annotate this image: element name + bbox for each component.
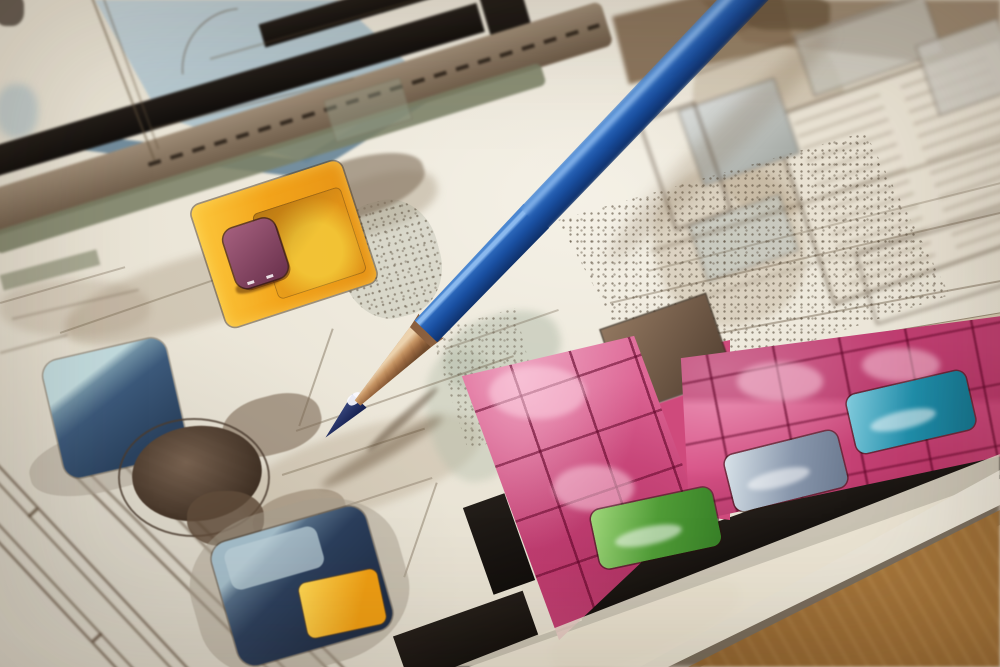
pillow-sheen [869, 404, 938, 437]
yellow-pillow [297, 568, 387, 640]
pillow-sheen [613, 520, 683, 552]
pillow-sheen [746, 463, 812, 495]
cushion-sheen [737, 362, 823, 400]
cushion-sheen [489, 366, 586, 419]
photo-canvas [0, 0, 1000, 667]
pillow-stitch [247, 280, 254, 285]
pillow-stitch [266, 274, 273, 279]
